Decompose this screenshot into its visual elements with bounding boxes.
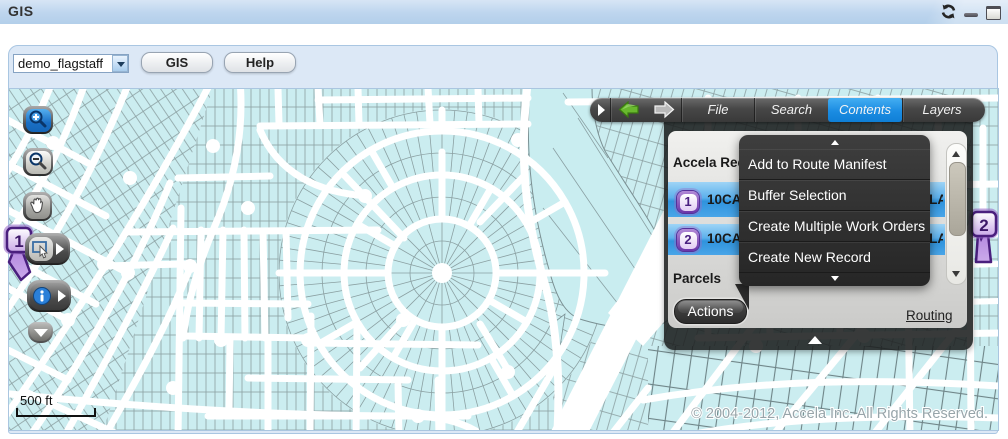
svg-text:500 ft: 500 ft xyxy=(20,393,53,408)
svg-text:1: 1 xyxy=(14,232,23,251)
svg-text:© 2004-2012, Accela Inc. All R: © 2004-2012, Accela Inc. All Rights Rese… xyxy=(691,406,988,422)
svg-text:2: 2 xyxy=(979,216,988,235)
